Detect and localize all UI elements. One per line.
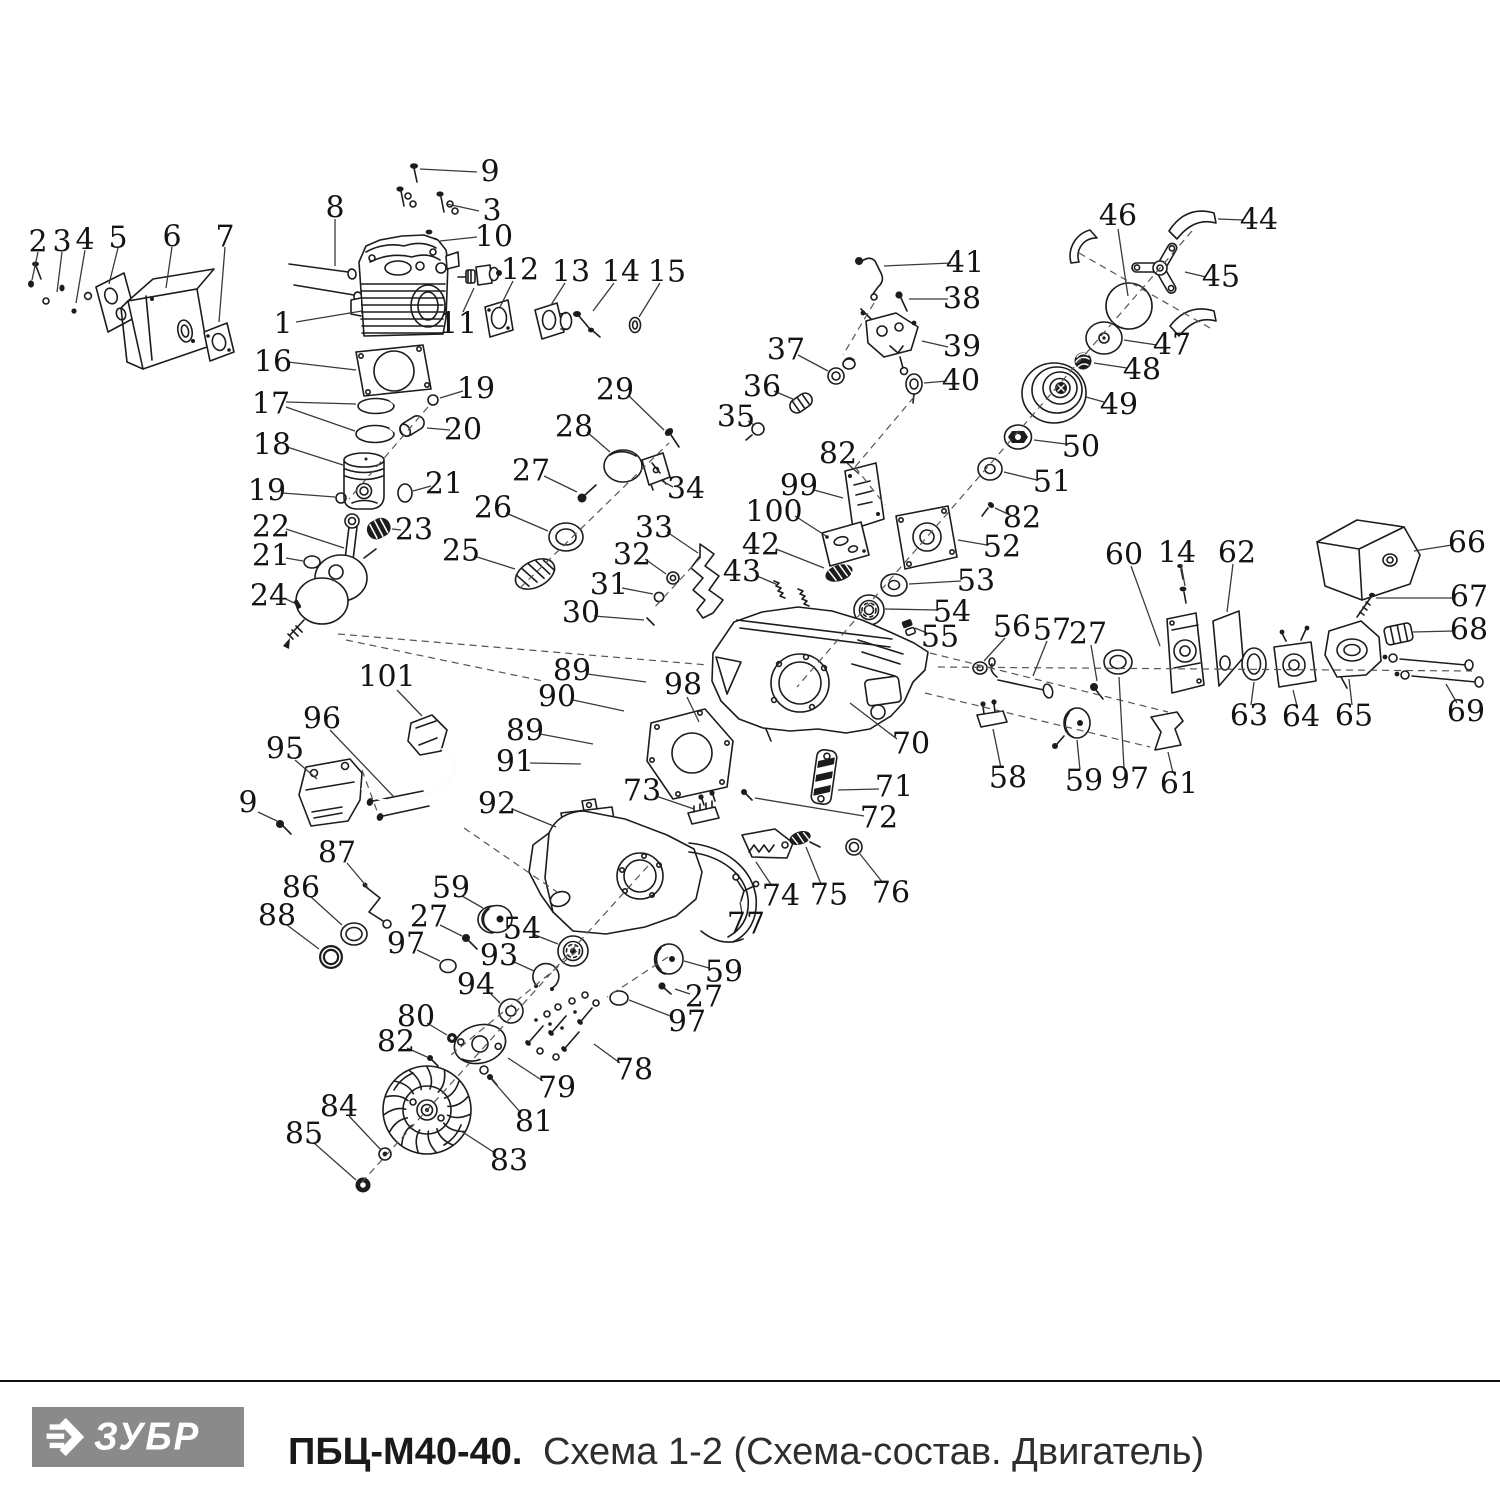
leader-line <box>629 1000 673 1017</box>
leader-line <box>506 513 548 531</box>
screw-14 <box>573 311 600 337</box>
chain-tensioner-71 <box>810 749 837 805</box>
cap-15 <box>630 318 641 333</box>
part-label-101: 101 <box>358 660 415 695</box>
ring-86 <box>341 923 367 945</box>
part-label-52: 52 <box>983 530 1021 565</box>
leader-line <box>1413 631 1454 632</box>
piston-rings-17 <box>356 399 396 443</box>
screw-72 <box>741 789 752 800</box>
washer-21 <box>398 484 412 502</box>
screw-27c <box>1090 683 1103 699</box>
zubr-logo-icon <box>42 1414 88 1460</box>
part-label-41: 41 <box>946 246 984 281</box>
throttle-rod-41 <box>855 257 882 300</box>
part-label-27: 27 <box>1069 617 1107 652</box>
screw-82b <box>982 501 995 516</box>
carburetor-64 <box>1274 626 1316 687</box>
part-label-97: 97 <box>387 927 425 962</box>
part-label-62: 62 <box>1218 536 1256 571</box>
screw-27a <box>578 485 597 503</box>
schema-subtitle: Схема 1-2 (Схема-состав. Двигатель) <box>543 1431 1204 1473</box>
nut-80 <box>447 1033 457 1043</box>
heat-shield-61 <box>1151 712 1183 750</box>
leader-line <box>440 237 477 241</box>
key-55 <box>901 619 916 637</box>
washer-31 <box>654 592 663 601</box>
washer-32 <box>667 572 679 584</box>
part-label-75: 75 <box>810 878 848 913</box>
oil-seal-26 <box>549 523 583 551</box>
part-label-11: 11 <box>439 307 477 342</box>
dash-line <box>855 397 914 467</box>
pump-bracket-34 <box>642 453 670 485</box>
part-label-15: 15 <box>648 255 686 290</box>
screw-27d <box>658 982 671 994</box>
part-label-5: 5 <box>108 221 127 256</box>
part-label-74: 74 <box>762 879 800 914</box>
part-label-100: 100 <box>745 495 802 530</box>
gasket-12 <box>485 300 513 337</box>
leader-line <box>594 616 644 620</box>
part-label-18: 18 <box>253 428 291 463</box>
bushing-36 <box>787 390 815 415</box>
cap-76 <box>846 839 862 855</box>
part-label-8: 8 <box>325 191 344 226</box>
part-label-25: 25 <box>442 534 480 569</box>
seal-97a <box>440 960 456 973</box>
part-label-10: 10 <box>475 220 513 255</box>
part-label-51: 51 <box>1033 465 1071 500</box>
leader-line <box>420 169 477 172</box>
part-label-71: 71 <box>875 770 913 805</box>
part-label-7: 7 <box>215 220 234 255</box>
part-label-46: 46 <box>1099 199 1137 234</box>
part-label-72: 72 <box>860 801 898 836</box>
leader-line <box>838 789 879 790</box>
part-label-69: 69 <box>1447 695 1485 730</box>
part-label-58: 58 <box>989 761 1027 796</box>
intake-manifold-13 <box>535 303 572 339</box>
guide-plate-100 <box>822 522 869 566</box>
part-label-67: 67 <box>1450 580 1488 615</box>
screw-38 <box>895 291 907 311</box>
clutch-shoe-44 <box>1169 211 1216 239</box>
part-label-14: 14 <box>602 255 640 290</box>
leader-line <box>288 362 356 370</box>
drum-59b <box>655 944 683 974</box>
part-label-39: 39 <box>943 330 981 365</box>
part-label-53: 53 <box>957 564 995 599</box>
part-label-79: 79 <box>538 1071 576 1106</box>
leader-line <box>587 674 646 682</box>
part-label-77: 77 <box>727 907 765 942</box>
leader-line <box>286 402 356 404</box>
leader-line <box>885 609 937 610</box>
part-label-43: 43 <box>723 555 761 590</box>
part-label-65: 65 <box>1335 699 1373 734</box>
washer-21b <box>304 556 320 568</box>
leader-line <box>776 549 824 568</box>
part-label-38: 38 <box>943 282 981 317</box>
dash-line <box>925 693 1150 747</box>
part-label-55: 55 <box>921 620 959 655</box>
screw-82c <box>427 1055 438 1066</box>
part-label-23: 23 <box>395 513 433 548</box>
leader-line <box>219 247 225 322</box>
leader-line <box>474 556 515 569</box>
screw-27b <box>462 934 477 949</box>
part-label-63: 63 <box>1230 699 1268 734</box>
part-label-9: 9 <box>480 155 499 190</box>
part-label-2: 2 <box>28 225 47 260</box>
part-label-1: 1 <box>273 307 292 342</box>
part-label-94: 94 <box>457 968 495 1003</box>
brake-ratchet-74 <box>742 829 793 858</box>
clutch-shoe-left <box>1070 230 1097 263</box>
part-label-87: 87 <box>318 836 356 871</box>
part-label-95: 95 <box>266 732 304 767</box>
leader-line <box>1119 677 1124 768</box>
part-label-40: 40 <box>942 364 980 399</box>
part-label-9: 9 <box>238 786 257 821</box>
leader-line <box>1118 229 1128 296</box>
leader-line <box>884 263 951 266</box>
leader-line <box>573 700 624 711</box>
seal-51 <box>978 458 1002 480</box>
part-label-26: 26 <box>474 491 512 526</box>
logo-text: ЗУБР <box>94 1415 200 1459</box>
part-label-76: 76 <box>872 876 910 911</box>
stator-plate-79 <box>450 1019 510 1069</box>
part-label-90: 90 <box>538 680 576 715</box>
grommet-40 <box>906 374 922 403</box>
leader-line <box>512 809 556 827</box>
knob-37 <box>828 358 855 384</box>
part-label-84: 84 <box>320 1090 358 1125</box>
worm-spring-25 <box>510 553 559 596</box>
part-label-34: 34 <box>667 472 705 507</box>
leader-line <box>258 812 277 821</box>
part-label-49: 49 <box>1100 388 1138 423</box>
oil-line-57 <box>989 658 1054 699</box>
ignition-coil-95 <box>299 759 362 826</box>
part-label-13: 13 <box>552 255 590 290</box>
pin-30 <box>647 618 654 625</box>
cover-plate-52 <box>896 506 957 569</box>
part-label-89: 89 <box>506 714 544 749</box>
washer-94 <box>499 999 523 1023</box>
part-label-97: 97 <box>1111 762 1149 797</box>
part-label-60: 60 <box>1105 538 1143 573</box>
leader-line <box>282 493 335 497</box>
cylinder-bolts-8 <box>289 264 363 303</box>
part-label-19: 19 <box>457 372 495 407</box>
exhaust-gasket-7 <box>204 323 234 361</box>
part-label-83: 83 <box>490 1144 528 1179</box>
leader-line <box>76 250 85 303</box>
part-label-35: 35 <box>717 400 755 435</box>
part-label-82: 82 <box>819 437 857 472</box>
part-label-66: 66 <box>1448 526 1486 561</box>
part-label-17: 17 <box>252 387 290 422</box>
part-label-88: 88 <box>258 899 296 934</box>
airbox-65 <box>1325 621 1381 688</box>
leader-line <box>755 798 864 816</box>
leader-line <box>814 490 843 498</box>
parts-diagram-canvas: 2345679310811112131415161718192019212223… <box>0 0 1500 1500</box>
part-label-82: 82 <box>377 1025 415 1060</box>
part-label-91: 91 <box>496 745 534 780</box>
screw-set-78 <box>524 992 599 1060</box>
head-screws-9-3-10 <box>396 163 458 243</box>
wire-clip-87 <box>363 883 391 928</box>
part-label-64: 64 <box>1282 700 1320 735</box>
part-label-78: 78 <box>615 1053 653 1088</box>
part-label-21: 21 <box>425 467 463 502</box>
plug-boot-101 <box>362 715 455 800</box>
clutch-drum-49 <box>1022 363 1086 423</box>
clutch-spider-45 <box>1132 242 1178 295</box>
washer-47 <box>1086 322 1122 354</box>
cylinder-gasket-16 <box>356 345 431 396</box>
part-label-4: 4 <box>75 223 94 258</box>
part-label-20: 20 <box>444 413 482 448</box>
leader-line <box>909 581 961 584</box>
part-label-81: 81 <box>515 1105 553 1140</box>
needle-bearing-23 <box>364 515 394 543</box>
model-number: ПБЦ-М40-40. <box>288 1431 522 1473</box>
dash-line <box>938 667 1472 671</box>
fuel-tank-66 <box>1317 520 1420 600</box>
crankcase-left-92 <box>529 799 756 942</box>
lever-assembly-39 <box>861 309 918 375</box>
muffler-body-6 <box>121 269 214 369</box>
part-label-30: 30 <box>562 596 600 631</box>
leader-line <box>296 311 362 322</box>
leader-line <box>286 529 344 548</box>
part-label-37: 37 <box>767 333 805 368</box>
part-label-19: 19 <box>248 474 286 509</box>
part-label-21: 21 <box>252 539 290 574</box>
part-label-98: 98 <box>664 668 702 703</box>
guide-plate-33 <box>691 544 723 618</box>
worm-gear-42 <box>823 561 855 585</box>
leader-line <box>287 447 343 465</box>
footer-divider <box>0 1380 1500 1382</box>
filter-68 <box>1383 622 1413 645</box>
part-label-73: 73 <box>623 774 661 809</box>
leader-line <box>1414 545 1452 551</box>
part-label-6: 6 <box>162 220 181 255</box>
spark-plug-11 <box>458 265 502 285</box>
leader-line <box>286 407 355 431</box>
part-label-59: 59 <box>1065 764 1103 799</box>
part-label-56: 56 <box>993 610 1031 645</box>
part-label-57: 57 <box>1033 613 1071 648</box>
part-label-44: 44 <box>1240 203 1278 238</box>
leader-line <box>1227 564 1233 612</box>
zubr-logo: ЗУБР <box>32 1407 244 1467</box>
grommet-88 <box>319 945 343 969</box>
screw-9b <box>276 820 291 834</box>
leader-line <box>530 763 581 764</box>
part-label-16: 16 <box>254 345 292 380</box>
part-label-45: 45 <box>1202 260 1240 295</box>
part-label-29: 29 <box>596 373 634 408</box>
part-label-96: 96 <box>303 702 341 737</box>
part-label-92: 92 <box>478 787 516 822</box>
part-label-68: 68 <box>1450 613 1488 648</box>
part-label-85: 85 <box>285 1117 323 1152</box>
spring-48 <box>1075 353 1092 370</box>
springs-43 <box>774 581 809 606</box>
part-label-97: 97 <box>668 1005 706 1040</box>
part-label-70: 70 <box>892 727 930 762</box>
bushing-50 <box>1005 425 1032 449</box>
screw-29 <box>663 426 679 447</box>
parts-diagram-page: 2345679310811112131415161718192019212223… <box>0 0 1500 1500</box>
bearing-54b <box>558 936 588 966</box>
part-label-3: 3 <box>52 225 71 260</box>
leader-line <box>1131 566 1160 646</box>
gasket-62 <box>1213 611 1243 686</box>
part-label-61: 61 <box>1160 767 1198 802</box>
manifold-63 <box>1242 648 1266 680</box>
part-label-48: 48 <box>1123 353 1161 388</box>
seal-97c <box>1104 650 1132 674</box>
leader-line <box>540 734 593 744</box>
part-label-28: 28 <box>555 410 593 445</box>
part-label-24: 24 <box>250 579 288 614</box>
crankcase-right-70 <box>712 607 928 741</box>
nut-85 <box>356 1178 371 1193</box>
bracket-60 <box>1167 613 1204 693</box>
part-label-27: 27 <box>512 454 550 489</box>
grommet-56 <box>973 662 987 674</box>
part-label-12: 12 <box>501 253 539 288</box>
bracket-58 <box>977 699 1007 727</box>
crankshaft-22 <box>283 514 376 649</box>
part-label-14: 14 <box>1158 536 1196 571</box>
part-label-50: 50 <box>1062 430 1100 465</box>
schematic-title: ПБЦ-М40-40. Схема 1-2 (Схема-состав. Дви… <box>288 1424 1204 1480</box>
